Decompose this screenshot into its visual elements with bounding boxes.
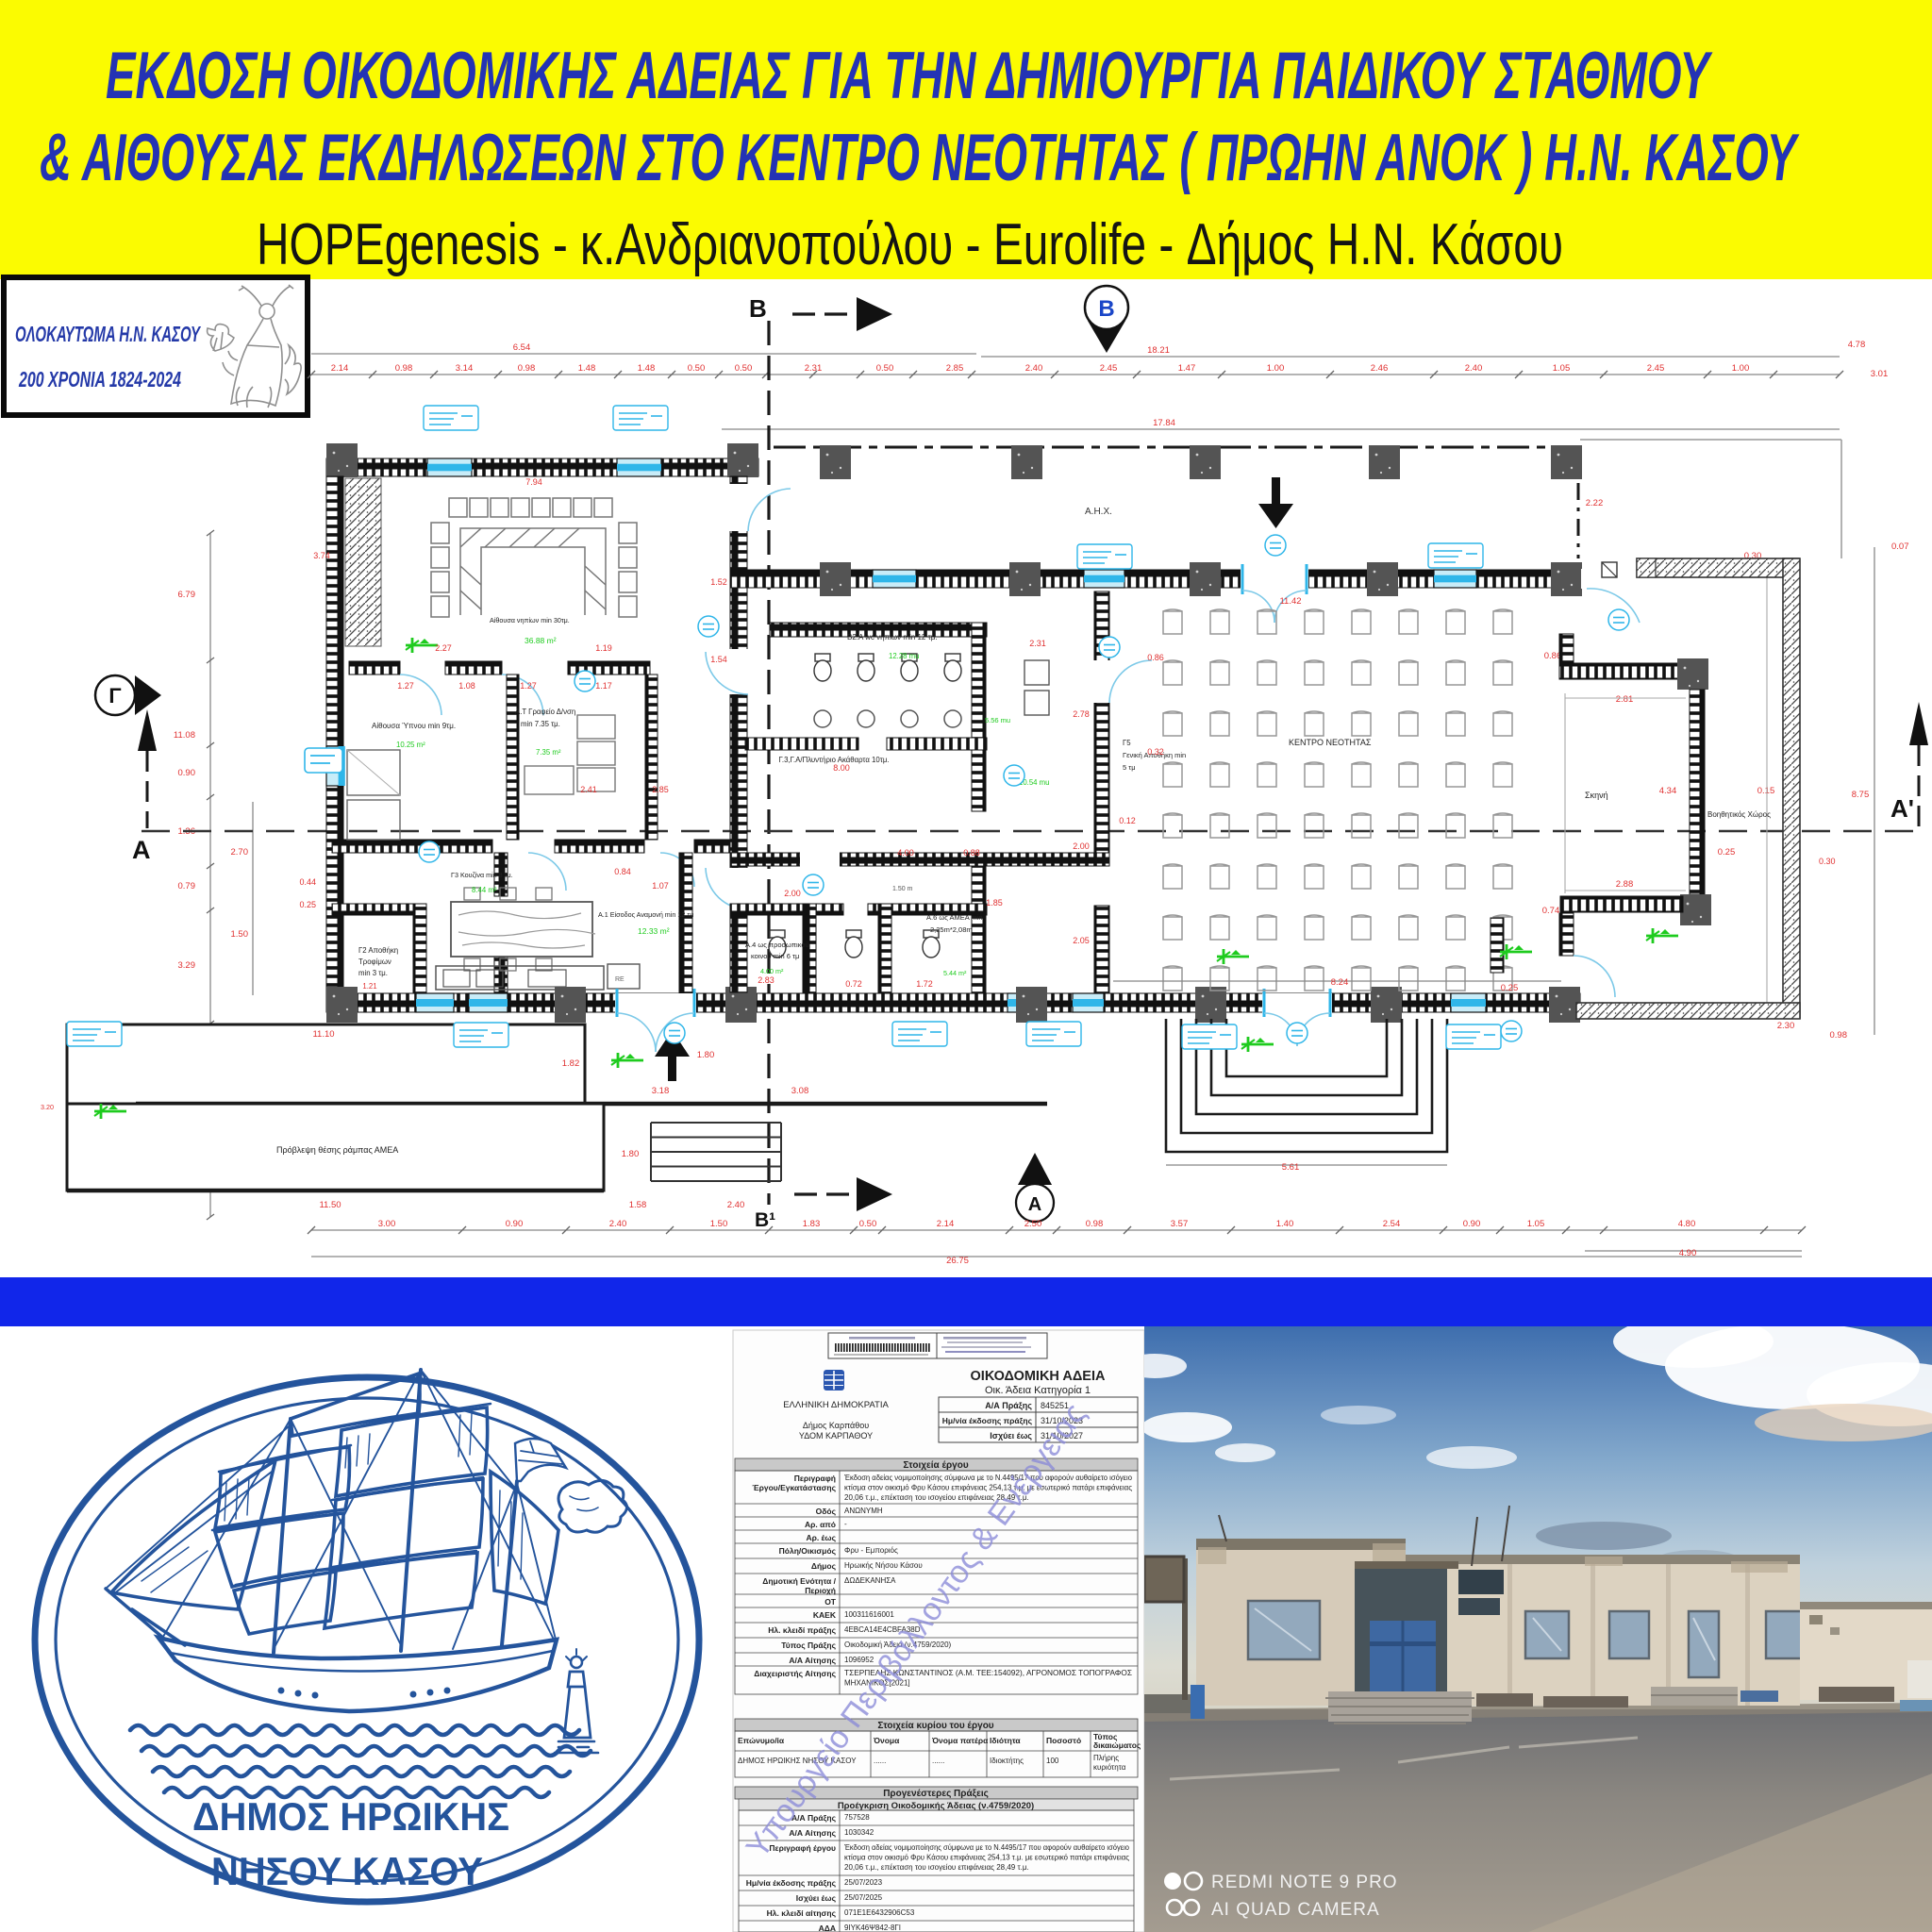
svg-text:ΟΙΚΟΔΟΜΙΚΗ ΑΔΕΙΑ: ΟΙΚΟΔΟΜΙΚΗ ΑΔΕΙΑ [971, 1369, 1106, 1384]
svg-text:ΚΑΕΚ: ΚΑΕΚ [813, 1610, 837, 1620]
svg-text:Α/Α Πράξης: Α/Α Πράξης [985, 1401, 1032, 1410]
svg-text:8.75: 8.75 [1852, 790, 1870, 800]
svg-text:4.78: 4.78 [1848, 340, 1866, 350]
svg-text:2.70: 2.70 [231, 847, 249, 858]
svg-text:2.22: 2.22 [1586, 498, 1604, 508]
svg-text:Αρ. από: Αρ. από [805, 1520, 836, 1529]
svg-text:1.05: 1.05 [1527, 1219, 1545, 1229]
svg-text:B¹: B¹ [755, 1209, 775, 1231]
svg-text:Α.1 Είσοδος Αναμονή min 12 τμ: Α.1 Είσοδος Αναμονή min 12 τμ [598, 910, 693, 919]
svg-text:1.54: 1.54 [710, 655, 727, 664]
svg-text:36.88 m²: 36.88 m² [525, 636, 557, 645]
svg-text:2.40: 2.40 [1025, 363, 1043, 374]
svg-text:0.44: 0.44 [299, 877, 316, 887]
svg-text:Έργου/Εγκατάστασης: Έργου/Εγκατάστασης [752, 1483, 836, 1492]
svg-text:1.08: 1.08 [458, 681, 475, 691]
svg-text:Α.6 ως ΑΜΕΑ min: Α.6 ως ΑΜΕΑ min [926, 913, 983, 922]
svg-text:Διαχειριστής Αίτησης: Διαχειριστής Αίτησης [754, 1669, 836, 1678]
svg-text:A: A [132, 836, 151, 864]
svg-text:10.25 m²: 10.25 m² [396, 741, 425, 749]
svg-text:2.14: 2.14 [331, 363, 349, 374]
svg-text:2.40: 2.40 [609, 1219, 627, 1229]
svg-text:0.50: 0.50 [735, 363, 753, 374]
svg-text:1.05: 1.05 [1553, 363, 1571, 374]
svg-text:26.75: 26.75 [946, 1256, 969, 1266]
svg-text:6.54: 6.54 [513, 342, 531, 353]
svg-text:4.80: 4.80 [1678, 1219, 1696, 1229]
svg-text:1.48: 1.48 [578, 363, 596, 374]
svg-text:3.14: 3.14 [456, 363, 474, 374]
svg-text:2.14: 2.14 [937, 1219, 955, 1229]
svg-text:B: B [1098, 296, 1114, 322]
svg-text:κυριότητα: κυριότητα [1093, 1763, 1126, 1772]
svg-text:200 ΧΡΟΝΙΑ 1824-2024: 200 ΧΡΟΝΙΑ 1824-2024 [18, 367, 181, 391]
svg-text:κοινού min 6 τμ: κοινού min 6 τμ [751, 952, 799, 960]
svg-text:20,06 τ.μ., επέκταση του ισογε: 20,06 τ.μ., επέκταση του ισογείου επιφάν… [844, 1863, 1029, 1872]
svg-text:25/07/2025: 25/07/2025 [844, 1893, 883, 1902]
svg-text:4.90: 4.90 [1679, 1248, 1697, 1258]
svg-text:Σκηνή: Σκηνή [1585, 791, 1608, 800]
svg-text:Β2.Α wc νηπίων min 12 τμ.: Β2.Α wc νηπίων min 12 τμ. [847, 633, 938, 641]
svg-text:Όνομα: Όνομα [873, 1736, 900, 1745]
svg-text:0.07: 0.07 [1891, 541, 1909, 552]
svg-text:1.50 m: 1.50 m [892, 886, 913, 892]
svg-text:Α.Η.Χ.: Α.Η.Χ. [1085, 507, 1112, 517]
svg-text:Δήμος Καρπάθου: Δήμος Καρπάθου [803, 1421, 869, 1430]
svg-text:Περιγραφή: Περιγραφή [794, 1474, 836, 1483]
svg-text:8.00: 8.00 [833, 763, 850, 773]
svg-text:2.50: 2.50 [1024, 1219, 1042, 1229]
svg-text:1.48: 1.48 [638, 363, 656, 374]
svg-text:REDMI NOTE 9 PRO: REDMI NOTE 9 PRO [1211, 1873, 1398, 1892]
svg-text:2.45: 2.45 [1100, 363, 1118, 374]
svg-text:4.00 m²: 4.00 m² [760, 967, 784, 975]
svg-text:2.46: 2.46 [1371, 363, 1389, 374]
svg-text:1.50: 1.50 [710, 1219, 728, 1229]
svg-text:Προγενέστερες Πράξεις: Προγενέστερες Πράξεις [883, 1789, 989, 1799]
svg-text:757528: 757528 [844, 1813, 870, 1822]
svg-text:Βοηθητικός Χώρος: Βοηθητικός Χώρος [1707, 810, 1771, 819]
svg-text:0.98: 0.98 [1830, 1030, 1848, 1041]
svg-text:min 3 τμ.: min 3 τμ. [358, 969, 388, 977]
svg-text:2.83: 2.83 [758, 975, 774, 985]
svg-text:0.90: 0.90 [506, 1219, 524, 1229]
svg-text:1.40: 1.40 [1276, 1219, 1294, 1229]
svg-text:2.45: 2.45 [1647, 363, 1665, 374]
svg-text:1.00: 1.00 [1267, 363, 1285, 374]
svg-text:ΟΛΟΚΑΥΤΩΜΑ Η.Ν. ΚΑΣΟΥ: ΟΛΟΚΑΥΤΩΜΑ Η.Ν. ΚΑΣΟΥ [15, 322, 202, 346]
svg-text:0.30: 0.30 [1819, 857, 1836, 866]
svg-text:11.42: 11.42 [1279, 596, 1301, 607]
svg-text:3.18: 3.18 [652, 1086, 670, 1096]
svg-text:1.00: 1.00 [1732, 363, 1750, 374]
svg-text:12.33 m²: 12.33 m² [638, 926, 670, 936]
svg-text:Έκδοση αδείας νομιμοποίησης σύ: Έκδοση αδείας νομιμοποίησης σύμφωνα με τ… [843, 1474, 1132, 1482]
svg-text:2.78: 2.78 [1073, 709, 1090, 719]
svg-text:......: ...... [932, 1757, 944, 1765]
svg-text:0.25: 0.25 [1501, 983, 1519, 993]
svg-text:Οικ. Άδεια Κατηγορία 1: Οικ. Άδεια Κατηγορία 1 [985, 1385, 1091, 1396]
svg-text:1030342: 1030342 [844, 1828, 874, 1837]
svg-text:2.54: 2.54 [1383, 1219, 1401, 1229]
svg-text:0.25: 0.25 [1718, 847, 1736, 858]
svg-text:2.41: 2.41 [580, 785, 597, 794]
svg-text:1.07: 1.07 [652, 881, 669, 891]
svg-text:Ιδιότητα: Ιδιότητα [990, 1736, 1021, 1745]
svg-text:0.90: 0.90 [178, 768, 196, 778]
svg-text:1.80: 1.80 [697, 1050, 715, 1060]
svg-text:7.94: 7.94 [525, 477, 542, 487]
svg-text:0.32: 0.32 [1147, 747, 1164, 757]
svg-text:2.85: 2.85 [652, 785, 669, 794]
svg-text:Α/Α Αίτησης: Α/Α Αίτησης [789, 1656, 836, 1665]
svg-text:0.84: 0.84 [614, 867, 631, 876]
svg-text:0.86: 0.86 [1544, 651, 1562, 661]
svg-text:8.44 m²: 8.44 m² [472, 886, 497, 894]
svg-text:0.15: 0.15 [1757, 786, 1775, 796]
svg-text:8.24: 8.24 [1331, 977, 1349, 988]
svg-text:0.98: 0.98 [1086, 1219, 1104, 1229]
svg-text:-: - [844, 1520, 847, 1528]
svg-text:1.27: 1.27 [520, 681, 537, 691]
svg-text:3.29: 3.29 [178, 960, 196, 971]
svg-text:& ΑΙΘΟΥΣΑΣ ΕΚΔΗΛΩΣΕΩΝ ΣΤΟ ΚΕΝΤ: & ΑΙΘΟΥΣΑΣ ΕΚΔΗΛΩΣΕΩΝ ΣΤΟ ΚΕΝΤΡΟ ΝΕΟΤΗΤΑ… [40, 121, 1800, 195]
svg-text:Όνομα πατέρα: Όνομα πατέρα [931, 1736, 989, 1745]
svg-text:0.74: 0.74 [1542, 906, 1560, 916]
svg-text:A': A' [1890, 794, 1914, 823]
svg-text:0.98: 0.98 [395, 363, 413, 374]
svg-text:1.21: 1.21 [362, 982, 376, 991]
svg-text:4.34: 4.34 [1659, 786, 1677, 796]
svg-text:ΕΚΔΟΣΗ ΟΙΚΟΔΟΜΙΚΗΣ ΑΔΕΙΑΣ ΓΙΑ: ΕΚΔΟΣΗ ΟΙΚΟΔΟΜΙΚΗΣ ΑΔΕΙΑΣ ΓΙΑ ΤΗΝ ΔΗΜΙΟΥ… [106, 39, 1713, 113]
svg-text:2.88: 2.88 [1616, 879, 1634, 890]
svg-text:5.61: 5.61 [1282, 1162, 1300, 1173]
svg-text:11.10: 11.10 [312, 1029, 334, 1040]
svg-text:2.31: 2.31 [1029, 639, 1046, 648]
svg-text:Ηρωικής Νήσου Κάσου: Ηρωικής Νήσου Κάσου [844, 1561, 923, 1570]
svg-text:Περιοχή: Περιοχή [805, 1586, 836, 1595]
svg-text:5 τμ: 5 τμ [1123, 763, 1136, 772]
svg-text:2.30: 2.30 [1777, 1021, 1795, 1031]
svg-text:071E1E6432906C53: 071E1E6432906C53 [844, 1908, 915, 1917]
svg-text:κτίσμα στον οικισμό Φρυ Κάσου: κτίσμα στον οικισμό Φρυ Κάσου επιφάνειας… [844, 1854, 1129, 1862]
svg-text:3.00: 3.00 [378, 1219, 396, 1229]
svg-text:25/07/2023: 25/07/2023 [844, 1878, 883, 1887]
svg-text:RE: RE [615, 976, 625, 983]
svg-text:3.08: 3.08 [791, 1086, 809, 1096]
svg-text:Α.4 ως προσωπικού: Α.4 ως προσωπικού [745, 941, 809, 949]
svg-text:......: ...... [874, 1757, 886, 1765]
svg-text:κτίσμα στον οικισμό Φρυ Κάσου: κτίσμα στον οικισμό Φρυ Κάσου επιφάνειας… [844, 1484, 1132, 1492]
svg-text:Α/Α Αίτησης: Α/Α Αίτησης [789, 1828, 836, 1838]
svg-text:ΔΩΔΕΚΑΝΗΣΑ: ΔΩΔΕΚΑΝΗΣΑ [844, 1576, 896, 1585]
svg-text:Στοιχεία έργου: Στοιχεία έργου [903, 1460, 968, 1471]
svg-text:1.47: 1.47 [1178, 363, 1196, 374]
svg-text:Ποσοστό: Ποσοστό [1046, 1736, 1081, 1745]
svg-text:1.82: 1.82 [562, 1058, 580, 1069]
svg-text:Αίθουσα Ύπνου min 9τμ.: Αίθουσα Ύπνου min 9τμ. [372, 722, 456, 730]
svg-text:Ισχύει έως: Ισχύει έως [796, 1893, 837, 1903]
svg-text:Γ2 Αποθήκη: Γ2 Αποθήκη [358, 946, 398, 955]
svg-text:ΚΕΝΤΡΟ ΝΕΟΤΗΤΑΣ: ΚΕΝΤΡΟ ΝΕΟΤΗΤΑΣ [1289, 738, 1372, 747]
svg-text:Έκδοση αδείας νομιμοποίησης σύ: Έκδοση αδείας νομιμοποίησης σύμφωνα με τ… [843, 1843, 1129, 1852]
svg-text:ΥΔΟΜ ΚΑΡΠΑΘΟΥ: ΥΔΟΜ ΚΑΡΠΑΘΟΥ [799, 1431, 873, 1441]
svg-text:ΑΔΑ: ΑΔΑ [819, 1924, 836, 1932]
svg-text:ΔΗΜΟΣ ΗΡΩΙΚΗΣ: ΔΗΜΟΣ ΗΡΩΙΚΗΣ [192, 1794, 509, 1839]
svg-text:0.50: 0.50 [688, 363, 706, 374]
svg-text:Γ3 Κουζίνα min 8 τμ.: Γ3 Κουζίνα min 8 τμ. [451, 871, 513, 879]
svg-text:7.35 m²: 7.35 m² [536, 748, 561, 757]
svg-text:Πόλη/Οικισμός: Πόλη/Οικισμός [779, 1546, 837, 1556]
svg-text:0.98: 0.98 [518, 363, 536, 374]
svg-text:2.00: 2.00 [784, 889, 801, 898]
svg-text:6.79: 6.79 [178, 590, 196, 600]
svg-text:0.12: 0.12 [1119, 816, 1136, 825]
svg-text:3.01: 3.01 [1871, 369, 1889, 379]
svg-text:11.50: 11.50 [319, 1200, 341, 1210]
svg-text:Γ5: Γ5 [1123, 739, 1131, 747]
svg-text:HOPEgenesis - κ.Ανδριανοπούλου: HOPEgenesis - κ.Ανδριανοπούλου - Eurolif… [257, 212, 1563, 277]
svg-text:1.72: 1.72 [916, 979, 933, 989]
svg-text:1.50: 1.50 [231, 929, 249, 940]
svg-text:Α.Τ Γραφείο Δ/νση: Α.Τ Γραφείο Δ/νση [515, 708, 575, 716]
svg-text:ΝΗΣΟΥ ΚΑΣΟΥ: ΝΗΣΟΥ ΚΑΣΟΥ [211, 1849, 483, 1893]
svg-text:Ηλ. κλειδί αίτησης: Ηλ. κλειδί αίτησης [767, 1908, 837, 1918]
svg-text:Δήμος: Δήμος [811, 1561, 837, 1571]
svg-text:3.57: 3.57 [1171, 1219, 1189, 1229]
svg-text:Στοιχεία κυρίου του έργου: Στοιχεία κυρίου του έργου [877, 1721, 993, 1731]
svg-text:0.86: 0.86 [1147, 653, 1164, 662]
svg-text:1.19: 1.19 [595, 643, 612, 653]
svg-text:min 7.35 τμ.: min 7.35 τμ. [521, 720, 560, 728]
svg-text:Τύπος Πράξης: Τύπος Πράξης [781, 1641, 836, 1650]
svg-text:1.17: 1.17 [595, 681, 612, 691]
svg-text:2,25m*2,08m: 2,25m*2,08m [930, 925, 973, 934]
svg-text:100: 100 [1046, 1757, 1059, 1765]
svg-text:9ΙΥΚ46Ψ842-8ΓΙ: 9ΙΥΚ46Ψ842-8ΓΙ [844, 1924, 901, 1932]
svg-text:12.28 mu: 12.28 mu [889, 652, 920, 660]
svg-text:2.00: 2.00 [1073, 841, 1090, 851]
svg-text:5.56 mu: 5.56 mu [985, 716, 1010, 724]
svg-text:ΑΝΩΝΥΜΗ: ΑΝΩΝΥΜΗ [844, 1507, 883, 1515]
svg-text:1.58: 1.58 [629, 1200, 647, 1210]
svg-text:2.40: 2.40 [1465, 363, 1483, 374]
svg-text:3.20: 3.20 [41, 1103, 54, 1111]
svg-text:Ημ/νία έκδοσης πράξης: Ημ/νία έκδοσης πράξης [746, 1878, 837, 1888]
svg-text:2.31: 2.31 [805, 363, 823, 374]
svg-text:2.27: 2.27 [435, 643, 452, 653]
svg-text:5.44 m²: 5.44 m² [943, 969, 967, 977]
svg-text:0.50: 0.50 [876, 363, 894, 374]
svg-text:ΕΛΛΗΝΙΚΗ ΔΗΜΟΚΡΑΤΙΑ: ΕΛΛΗΝΙΚΗ ΔΗΜΟΚΡΑΤΙΑ [783, 1400, 889, 1410]
svg-text:0.72: 0.72 [845, 979, 862, 989]
svg-text:Φρυ - Εμποριός: Φρυ - Εμποριός [844, 1546, 898, 1555]
svg-text:1.85: 1.85 [986, 898, 1003, 908]
svg-text:0.88: 0.88 [963, 848, 980, 858]
svg-text:0.90: 0.90 [1463, 1219, 1481, 1229]
svg-text:4.00: 4.00 [897, 848, 914, 858]
svg-text:Ηλ. κλειδί πράξης: Ηλ. κλειδί πράξης [768, 1625, 836, 1635]
svg-text:Ισχύει έως: Ισχύει έως [990, 1431, 1032, 1441]
svg-text:AI QUAD CAMERA: AI QUAD CAMERA [1211, 1900, 1380, 1920]
svg-text:ΟΤ: ΟΤ [824, 1597, 837, 1607]
svg-text:100311616001: 100311616001 [844, 1610, 894, 1619]
svg-text:2.85: 2.85 [946, 363, 964, 374]
svg-text:Αρ. έως: Αρ. έως [806, 1533, 836, 1542]
svg-text:0.79: 0.79 [178, 881, 196, 891]
svg-text:17.84: 17.84 [1153, 418, 1175, 428]
svg-text:Πλήρης: Πλήρης [1093, 1754, 1119, 1762]
svg-text:δικαιώματος: δικαιώματος [1093, 1740, 1141, 1750]
svg-text:18.21: 18.21 [1147, 345, 1170, 356]
svg-text:Τροφίμων: Τροφίμων [358, 958, 391, 966]
svg-text:1.27: 1.27 [397, 681, 414, 691]
svg-text:Προέγκριση Οικοδομικής Άδειας: Προέγκριση Οικοδομικής Άδειας (ν.4759/20… [838, 1801, 1034, 1811]
svg-text:1.83: 1.83 [803, 1219, 821, 1229]
svg-text:2.05: 2.05 [1073, 936, 1090, 945]
svg-text:Οδός: Οδός [816, 1507, 837, 1516]
svg-text:2.40: 2.40 [727, 1200, 745, 1210]
svg-text:1.80: 1.80 [622, 1149, 640, 1159]
svg-text:B: B [749, 294, 767, 323]
svg-text:3.74: 3.74 [313, 551, 330, 560]
svg-text:1.52: 1.52 [710, 577, 727, 587]
svg-text:Πρόβλεψη θέσης ράμπας ΑΜΕΑ: Πρόβλεψη θέσης ράμπας ΑΜΕΑ [276, 1145, 398, 1155]
svg-text:0.25: 0.25 [299, 900, 316, 909]
svg-text:0.50: 0.50 [859, 1219, 877, 1229]
svg-text:Γ: Γ [108, 684, 121, 708]
svg-text:Αίθουσα νηπίων min 30τμ.: Αίθουσα νηπίων min 30τμ. [490, 616, 570, 625]
svg-text:Ιδιοκτήτης: Ιδιοκτήτης [990, 1757, 1024, 1765]
svg-text:Επώνυμο/ία: Επώνυμο/ία [738, 1736, 785, 1745]
svg-text:11.08: 11.08 [174, 730, 195, 741]
svg-text:Δημοτική Ενότητα /: Δημοτική Ενότητα / [762, 1576, 836, 1586]
svg-text:A: A [1028, 1194, 1041, 1215]
svg-text:2.81: 2.81 [1616, 694, 1634, 705]
svg-text:Ημ/νία έκδοσης πράξης: Ημ/νία έκδοσης πράξης [942, 1416, 1033, 1425]
